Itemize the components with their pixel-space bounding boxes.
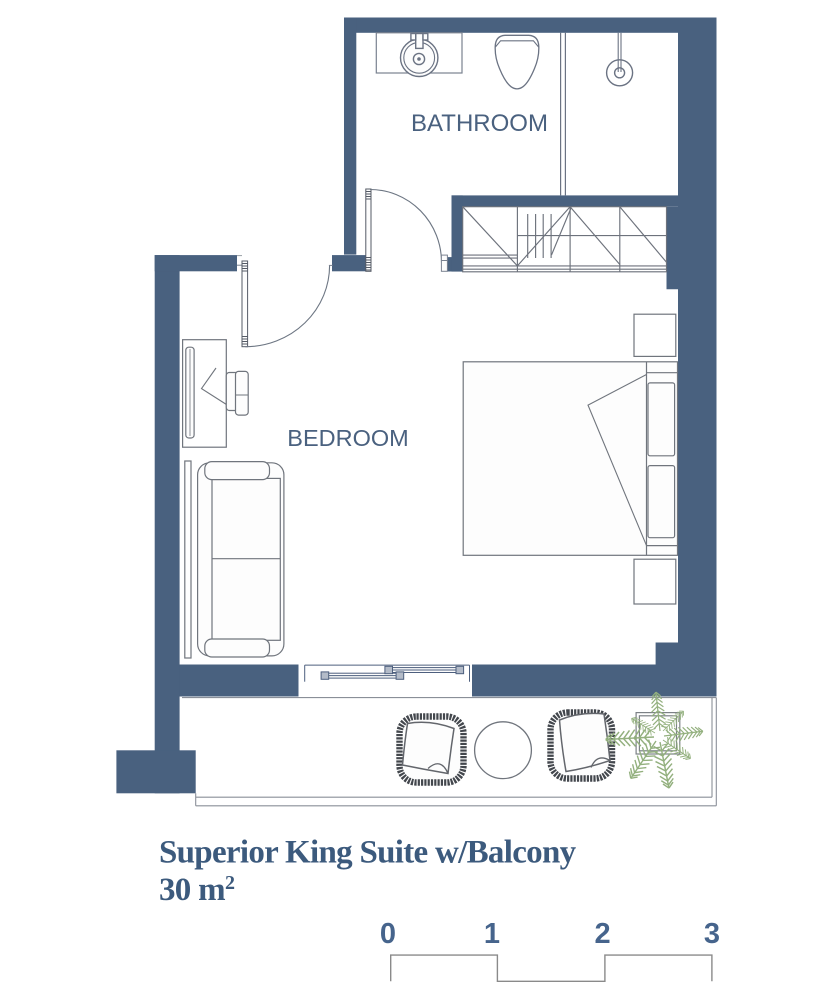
- svg-text:30 m2: 30 m2: [159, 872, 235, 908]
- svg-text:2: 2: [595, 918, 611, 950]
- svg-text:0: 0: [380, 918, 396, 950]
- svg-text:Superior King Suite w/Balcony: Superior King Suite w/Balcony: [159, 835, 577, 871]
- svg-text:1: 1: [484, 918, 500, 950]
- svg-text:3: 3: [704, 918, 720, 950]
- svg-text:BEDROOM: BEDROOM: [287, 425, 408, 451]
- svg-text:BATHROOM: BATHROOM: [411, 110, 548, 137]
